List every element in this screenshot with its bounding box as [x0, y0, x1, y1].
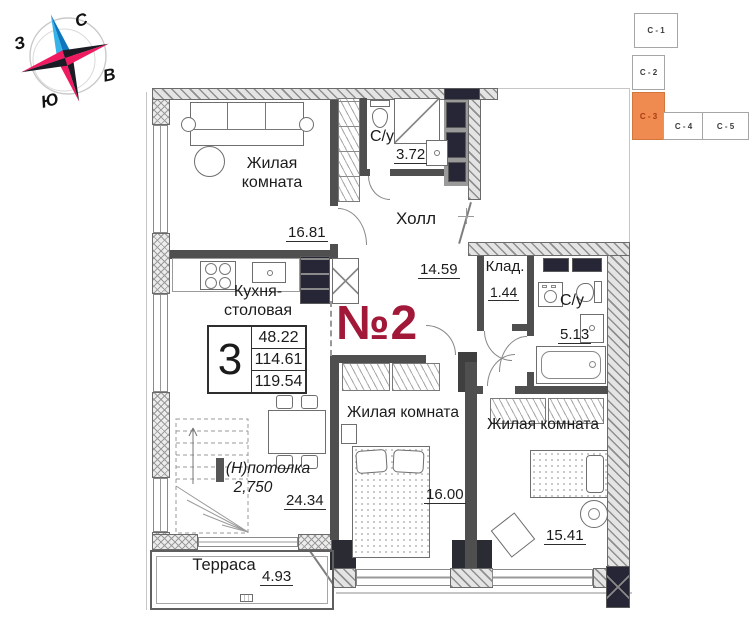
bedroom-2-area: 15.41	[544, 527, 586, 545]
kitchen-area: 24.34	[284, 492, 326, 510]
scheme-section-label: С - 3	[640, 112, 657, 121]
left-exterior-wall	[152, 233, 170, 294]
scheme-section-c5[interactable]: С - 5	[702, 112, 749, 140]
interior-wall	[527, 256, 534, 336]
interior-wall	[465, 362, 477, 568]
hall-area: 14.59	[418, 261, 460, 279]
storage-label: Клад.	[483, 258, 527, 276]
wardrobe	[338, 98, 360, 202]
bottom-exterior-wall	[450, 568, 493, 588]
wardrobe	[342, 363, 390, 391]
wall-cabinet	[572, 258, 602, 272]
scheme-section-c2[interactable]: С - 2	[632, 55, 665, 90]
coffee-table	[194, 146, 225, 177]
building-scheme: С - 1 С - 2 С - 3 С - 4 С - 5	[628, 8, 752, 140]
toilet-tank	[594, 281, 602, 303]
interior-wall	[330, 362, 339, 540]
sofa-armrest	[299, 117, 314, 132]
bedroom-1-area: 16.00	[424, 486, 466, 504]
facade-line	[629, 88, 630, 244]
toilet	[372, 108, 388, 128]
sink	[426, 140, 448, 166]
total-area-value: 119.54	[252, 371, 305, 392]
bathroom-2-area: 5.13	[558, 326, 591, 344]
kitchen-sink	[252, 262, 286, 283]
bathroom-2-label: С/у	[552, 292, 592, 311]
right-exterior-wall	[607, 255, 630, 586]
kitchen-label: Кухня-столовая	[212, 283, 304, 321]
hall-label: Холл	[388, 209, 444, 229]
scheme-section-c3-active[interactable]: С - 3	[632, 92, 665, 140]
window	[153, 294, 168, 392]
left-exterior-wall	[152, 99, 170, 125]
right-wing-top-wall	[468, 242, 630, 256]
terrace-window	[198, 537, 298, 547]
scheme-section-label: С - 5	[717, 122, 734, 131]
nightstand	[341, 424, 357, 444]
scheme-section-c1[interactable]: С - 1	[634, 13, 678, 48]
interior-wall	[330, 355, 426, 363]
bathroom-1-area: 3.72	[394, 146, 427, 164]
ceiling-height-label: (Н)потолка	[208, 460, 328, 478]
terrace-wall	[298, 534, 332, 550]
scheme-section-c4[interactable]: С - 4	[663, 112, 704, 140]
compass-rose: С З В Ю	[6, 0, 126, 118]
terrace-area: 4.93	[260, 568, 293, 586]
toilet-tank	[370, 100, 390, 107]
sofa	[190, 102, 304, 146]
door-arc	[487, 354, 515, 386]
window	[356, 569, 452, 586]
bathroom-1-label: С/у	[364, 128, 400, 147]
left-exterior-wall	[152, 392, 170, 478]
shower	[394, 98, 440, 144]
bathtub	[536, 346, 606, 384]
living-room-1-area: 16.81	[286, 224, 328, 242]
door-arc	[338, 208, 367, 245]
vent-shaft	[446, 102, 466, 128]
terrace-label: Терраса	[180, 556, 268, 575]
compass-west-label: З	[12, 33, 28, 54]
interior-wall	[477, 324, 484, 331]
dining-table	[268, 410, 326, 454]
door-tick	[466, 208, 467, 224]
bed	[530, 450, 608, 498]
area-value: 114.61	[252, 349, 305, 371]
interior-wall	[515, 386, 608, 394]
bed	[352, 446, 430, 558]
sofa-armrest	[181, 117, 196, 132]
window	[492, 569, 593, 586]
window	[153, 125, 168, 233]
door-arc	[426, 325, 456, 355]
entry-exterior-wall	[468, 99, 481, 200]
bedroom-2-label: Жилая комната	[484, 416, 602, 434]
window	[153, 478, 168, 532]
chair	[276, 395, 293, 409]
interior-wall	[330, 244, 338, 259]
wall-cabinet	[543, 258, 569, 272]
scheme-section-label: С - 4	[675, 122, 692, 131]
zone-dashed-line	[330, 301, 332, 356]
facade-line	[498, 88, 630, 89]
compass-north-label: С	[73, 9, 91, 31]
rug	[580, 500, 608, 528]
vent-shaft	[446, 132, 466, 158]
shaft-block	[606, 566, 630, 608]
interior-wall	[360, 169, 370, 176]
scheme-section-label: С - 2	[640, 68, 657, 77]
rooms-count: 3	[209, 327, 252, 392]
desk	[491, 512, 536, 557]
living-room-1-label: Жилая комната	[229, 155, 315, 193]
apartment-info-table: 3 48.22 114.61 119.54	[207, 325, 307, 394]
wardrobe	[392, 363, 440, 391]
floor-plan-page: С З В Ю С - 1 С - 2 С - 3 С - 4 С - 5	[0, 0, 755, 640]
storage-area: 1.44	[488, 284, 519, 302]
apartment-number-label: №2	[336, 296, 418, 351]
compass-east-label: В	[101, 64, 117, 85]
terrace-wall	[152, 534, 198, 550]
living-area-value: 48.22	[252, 327, 305, 349]
vent-shaft	[300, 256, 330, 304]
bedroom-1-label: Жилая комната	[344, 404, 462, 422]
drain-grate	[240, 594, 253, 602]
facade-line	[146, 92, 147, 610]
chair	[301, 395, 318, 409]
scheme-section-label: С - 1	[647, 26, 664, 35]
bottom-exterior-wall	[332, 568, 356, 588]
vent-shaft	[448, 162, 466, 182]
door-arc	[368, 176, 390, 200]
sill-line	[336, 592, 632, 594]
interior-wall	[477, 386, 483, 394]
interior-wall	[330, 100, 338, 206]
